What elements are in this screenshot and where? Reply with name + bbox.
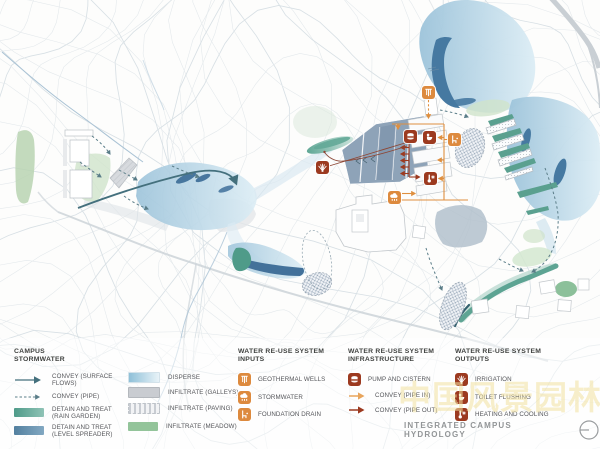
- legend-outputs: WATER RE-USE SYSTEM OUTPUTS IRRIGATION T…: [455, 348, 567, 426]
- convey-pipe-arrow-icon: [14, 392, 44, 402]
- legend-item: INFILTRATE (MEADOW): [128, 420, 240, 434]
- pump-and-cistern-icon: [348, 373, 361, 386]
- legend-item: CONVEY (PIPE IN): [348, 391, 452, 401]
- infiltrate-paving-oval: [451, 125, 490, 172]
- geothermal-wells-icon: [238, 373, 251, 386]
- legend-header: CAMPUS STORMWATER: [14, 348, 76, 364]
- hydrology-poster: CAMPUS STORMWATER CONVEY (SURFACE FLOWS)…: [0, 0, 600, 449]
- foundation-drain-icon: [448, 133, 461, 146]
- toilet-flushing-icon: [423, 131, 436, 144]
- legend-item: TOILET FLUSHING: [455, 391, 567, 404]
- legend-item: IRRIGATION: [455, 373, 567, 386]
- legend-item: GEOTHERMAL WELLS: [238, 373, 344, 386]
- legend-header: WATER RE-USE SYSTEM INPUTS: [238, 348, 328, 364]
- convey-pipe-out-arrow-icon: [348, 405, 368, 415]
- convey-pipe-in-arrow-icon: [348, 391, 368, 401]
- stormwater-icon: [238, 391, 251, 404]
- foundation-drain-icon: [238, 408, 251, 421]
- legend-campus-stormwater: CAMPUS STORMWATER CONVEY (SURFACE FLOWS)…: [14, 348, 130, 442]
- disperse-swatch: [128, 372, 160, 383]
- legend-item: DETAIN AND TREAT (LEVEL SPREADER): [14, 424, 130, 438]
- irrigation-icon: [316, 161, 329, 174]
- level-spreader-swatch: [14, 426, 44, 435]
- geothermal-wells-icon: [422, 86, 435, 99]
- legend-item: STORMWATER: [238, 391, 344, 404]
- legend-infrastructure: WATER RE-USE SYSTEM INFRASTRUCTURE PUMP …: [348, 348, 452, 420]
- heating-cooling-icon: [424, 172, 437, 185]
- legend-item: INFILTRATE (PAVING): [128, 402, 240, 416]
- paving-swatch: [128, 403, 160, 414]
- stormwater-icon: [388, 191, 401, 204]
- galleys-swatch: [128, 387, 160, 398]
- convey-surface-arrow-icon: [14, 375, 44, 385]
- title-bar: INTEGRATED CAMPUS HYDROLOGY: [404, 418, 600, 442]
- legend-item: PUMP AND CISTERN: [348, 373, 452, 386]
- rain-garden-swatch: [14, 408, 44, 417]
- legend-item: DETAIN AND TREAT (RAIN GARDEN): [14, 406, 130, 420]
- north-arrow-icon: [577, 418, 600, 442]
- poster-title: INTEGRATED CAMPUS HYDROLOGY: [404, 421, 568, 439]
- legend-item: CONVEY (SURFACE FLOWS): [14, 373, 130, 387]
- irrigation-icon: [455, 373, 468, 386]
- legend-item: INFILTRATE (GALLEYS): [128, 387, 240, 398]
- legend-header: WATER RE-USE SYSTEM INFRASTRUCTURE: [348, 348, 438, 364]
- legend-inputs: WATER RE-USE SYSTEM INPUTS GEOTHERMAL WE…: [238, 348, 344, 426]
- water-features: [15, 0, 600, 333]
- meadow-swatch: [128, 422, 158, 431]
- infiltrate-paving-oval: [434, 279, 472, 334]
- legend-item: FOUNDATION DRAIN: [238, 408, 344, 421]
- legend-header: WATER RE-USE SYSTEM OUTPUTS: [455, 348, 545, 364]
- legend-item: CONVEY (PIPE OUT): [348, 405, 452, 415]
- legend-item: CONVEY (PIPE): [14, 392, 130, 402]
- legend-infiltrate-column: DISPERSE INFILTRATE (GALLEYS) INFILTRATE…: [128, 372, 240, 437]
- pump-and-cistern-icon: [404, 130, 417, 143]
- legend-item: DISPERSE: [128, 372, 240, 383]
- toilet-flushing-icon: [455, 391, 468, 404]
